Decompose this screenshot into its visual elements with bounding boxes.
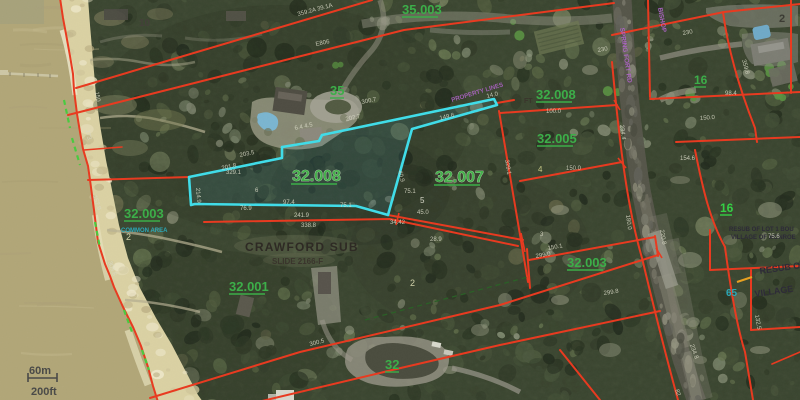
svg-text:241.9: 241.9 — [294, 213, 310, 219]
svg-text:97.4: 97.4 — [283, 200, 295, 206]
svg-text:75.6: 75.6 — [768, 234, 780, 240]
svg-text:2: 2 — [779, 13, 785, 25]
svg-text:32.001: 32.001 — [229, 279, 269, 294]
svg-text:32.003: 32.003 — [567, 255, 607, 270]
svg-text:4: 4 — [538, 165, 543, 174]
svg-text:35.003: 35.003 — [402, 2, 442, 17]
svg-text:VILLAGE OF MONROE: VILLAGE OF MONROE — [731, 235, 796, 241]
svg-text:60m: 60m — [29, 365, 51, 377]
svg-text:32.008: 32.008 — [536, 87, 576, 102]
svg-text:32.008: 32.008 — [292, 168, 341, 185]
svg-text:45.0: 45.0 — [417, 210, 429, 216]
svg-text:200ft: 200ft — [31, 386, 57, 398]
svg-text:SLIDE 2166-F: SLIDE 2166-F — [272, 257, 323, 266]
svg-text:32.007: 32.007 — [435, 169, 484, 186]
svg-text:329.1: 329.1 — [226, 170, 242, 176]
svg-text:32.005: 32.005 — [537, 131, 577, 146]
svg-text:FT: FT — [524, 98, 533, 105]
svg-text:2: 2 — [410, 278, 415, 288]
svg-text:16: 16 — [720, 201, 734, 215]
svg-text:154.6: 154.6 — [680, 156, 696, 162]
svg-text:65: 65 — [726, 288, 738, 299]
svg-text:16: 16 — [694, 73, 708, 87]
svg-text:35: 35 — [330, 83, 344, 98]
svg-text:76.9: 76.9 — [240, 206, 252, 212]
svg-text:5: 5 — [420, 196, 425, 205]
svg-text:338.8: 338.8 — [301, 223, 317, 229]
svg-text:32.003: 32.003 — [124, 206, 164, 221]
svg-text:34.42: 34.42 — [390, 220, 406, 226]
svg-text:10: 10 — [139, 18, 151, 29]
svg-text:75.1: 75.1 — [340, 203, 352, 209]
svg-text:28.9: 28.9 — [430, 237, 442, 243]
svg-text:150.0: 150.0 — [566, 166, 582, 172]
svg-text:RESUB OF LOT 1 BOU: RESUB OF LOT 1 BOU — [729, 227, 794, 233]
svg-text:150.0: 150.0 — [700, 115, 716, 122]
svg-text:100.0: 100.0 — [546, 109, 562, 115]
svg-text:2: 2 — [126, 232, 131, 242]
svg-text:CRAWFORD SUB: CRAWFORD SUB — [245, 240, 359, 254]
svg-text:75.1: 75.1 — [404, 189, 416, 195]
svg-text:98.4: 98.4 — [725, 91, 737, 97]
svg-text:32: 32 — [385, 357, 399, 372]
